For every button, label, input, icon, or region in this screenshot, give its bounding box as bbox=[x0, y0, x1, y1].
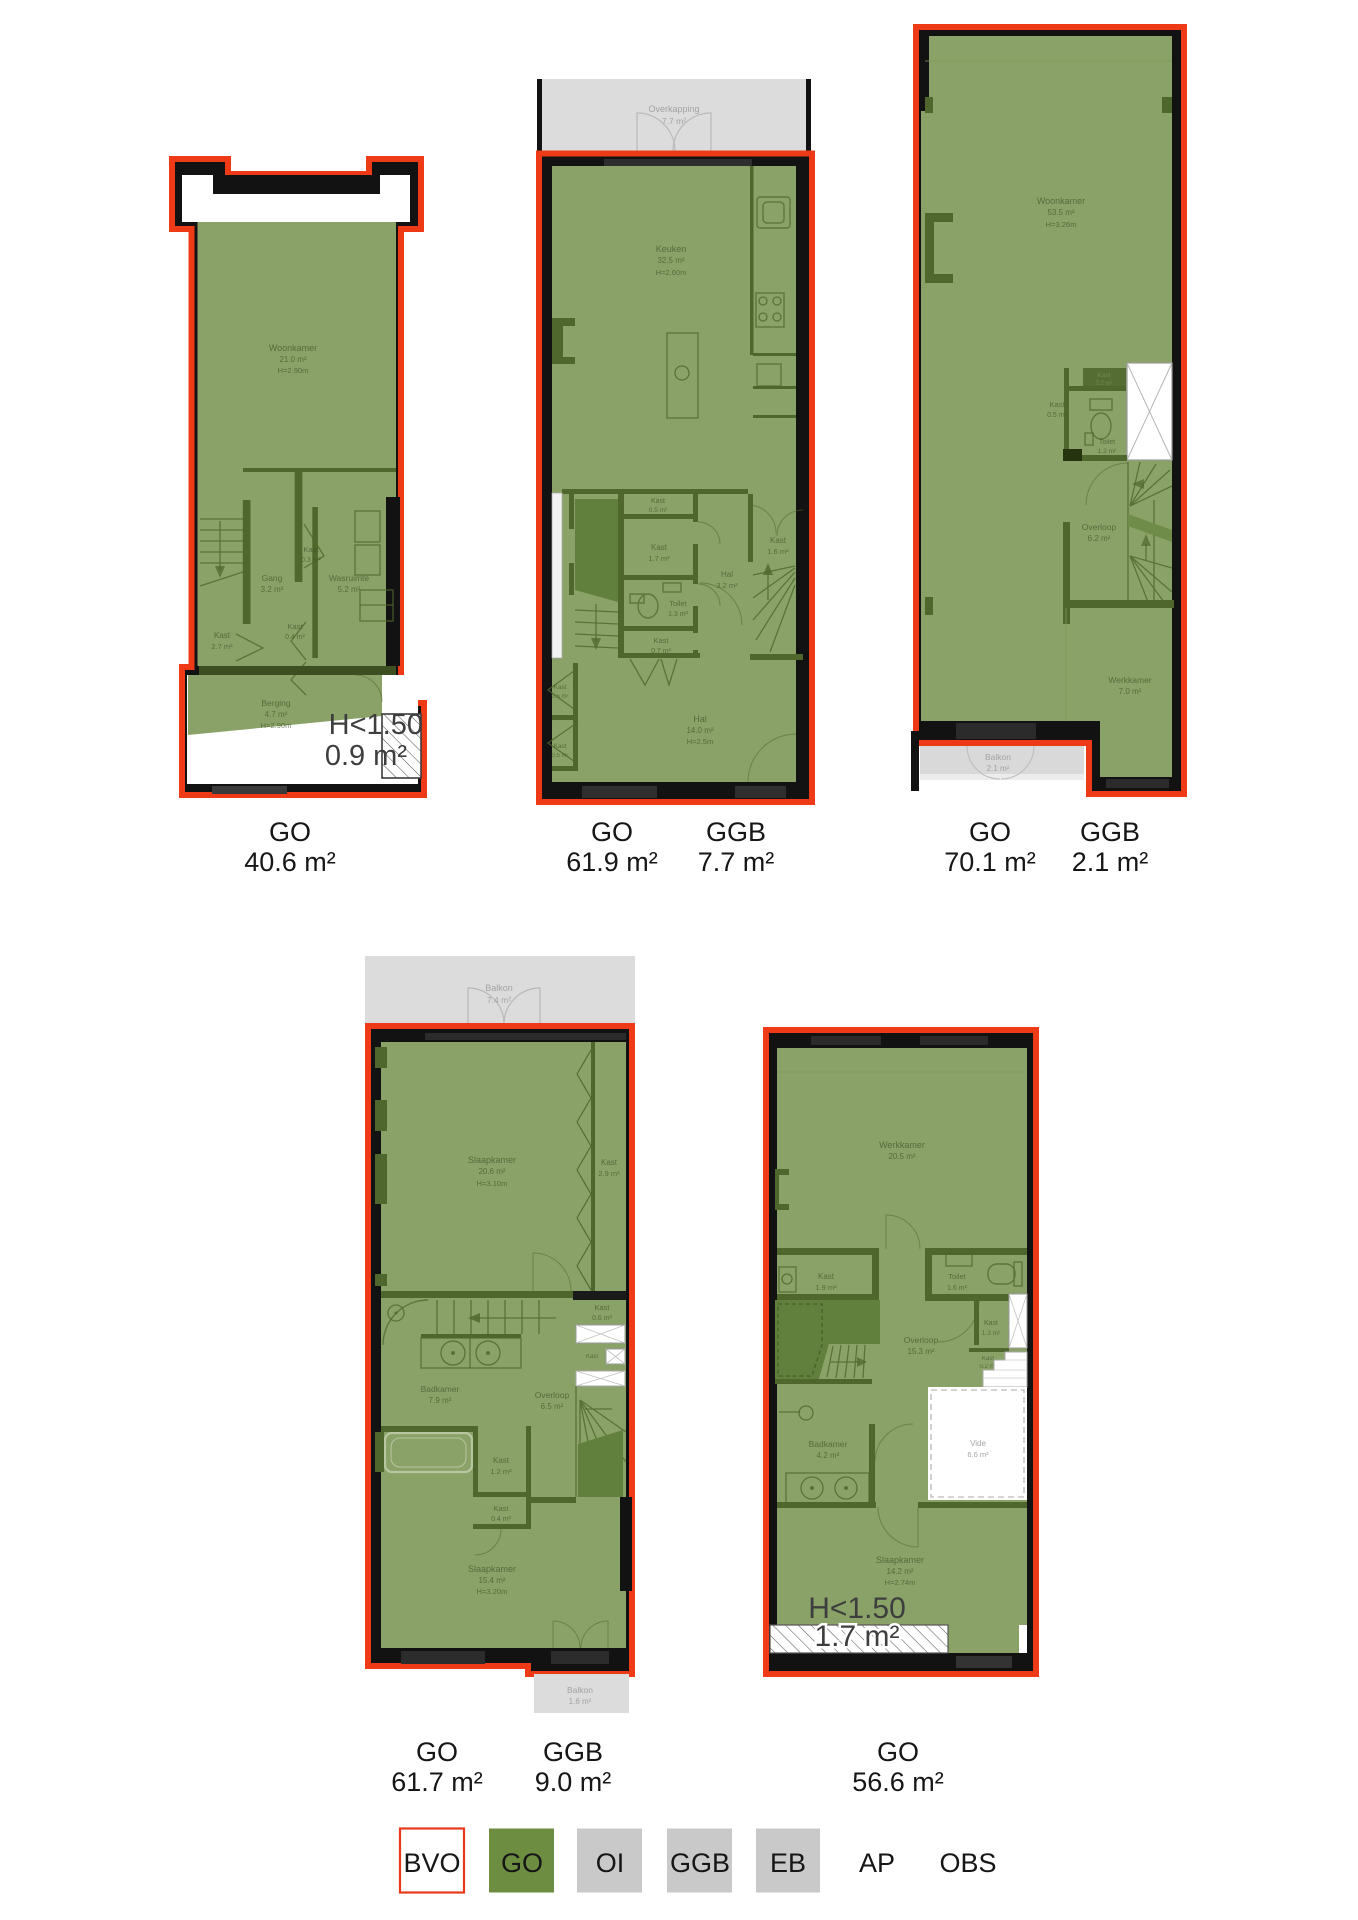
svg-text:Keuken: Keuken bbox=[656, 244, 687, 254]
svg-text:Kast: Kast bbox=[553, 684, 566, 691]
svg-text:Kast: Kast bbox=[553, 743, 566, 750]
svg-text:0.6 m²: 0.6 m² bbox=[592, 1315, 613, 1322]
svg-text:Overloop: Overloop bbox=[535, 1390, 570, 1400]
svg-text:H=3.10m: H=3.10m bbox=[477, 1179, 508, 1188]
svg-text:Overkapping: Overkapping bbox=[648, 104, 699, 114]
svg-text:Kast: Kast bbox=[287, 622, 303, 631]
svg-text:2.9 m²: 2.9 m² bbox=[598, 1169, 620, 1178]
svg-text:OBS: OBS bbox=[939, 1848, 996, 1878]
svg-text:Kast: Kast bbox=[303, 545, 319, 554]
svg-text:2.7 m²: 2.7 m² bbox=[211, 642, 233, 651]
svg-text:H=2.74m: H=2.74m bbox=[885, 1578, 916, 1587]
svg-text:Badkamer: Badkamer bbox=[421, 1384, 460, 1394]
svg-text:15.3 m²: 15.3 m² bbox=[907, 1347, 934, 1356]
svg-text:1.7 m²: 1.7 m² bbox=[814, 1620, 899, 1653]
svg-text:61.9 m²: 61.9 m² bbox=[566, 847, 658, 877]
svg-text:H=2.90m: H=2.90m bbox=[261, 721, 292, 730]
svg-text:0.5 m²: 0.5 m² bbox=[1047, 412, 1068, 419]
svg-text:Kast: Kast bbox=[214, 631, 231, 640]
svg-text:Berging: Berging bbox=[261, 698, 291, 708]
svg-text:GO: GO bbox=[969, 817, 1011, 847]
svg-text:Werkkamer: Werkkamer bbox=[1108, 675, 1151, 685]
svg-text:Slaapkamer: Slaapkamer bbox=[876, 1555, 924, 1565]
svg-text:4.7 m²: 4.7 m² bbox=[265, 710, 288, 719]
svg-text:14.2 m²: 14.2 m² bbox=[886, 1567, 913, 1576]
svg-text:Hal: Hal bbox=[721, 570, 733, 579]
svg-text:Overloop: Overloop bbox=[1082, 522, 1117, 532]
svg-text:Kast: Kast bbox=[653, 636, 669, 645]
svg-text:0.2 m²: 0.2 m² bbox=[1095, 381, 1112, 387]
svg-text:15.4 m²: 15.4 m² bbox=[478, 1576, 505, 1585]
svg-text:Toilet: Toilet bbox=[948, 1272, 966, 1281]
svg-text:0.5 m²: 0.5 m² bbox=[551, 753, 568, 759]
svg-text:20.5 m²: 20.5 m² bbox=[888, 1152, 915, 1161]
svg-text:21.0 m²: 21.0 m² bbox=[279, 355, 306, 364]
svg-text:2.1 m²: 2.1 m² bbox=[987, 764, 1010, 773]
svg-text:1.6 m²: 1.6 m² bbox=[569, 1697, 592, 1706]
svg-text:GGB: GGB bbox=[670, 1848, 730, 1878]
svg-text:3.2 m²: 3.2 m² bbox=[716, 581, 738, 590]
svg-text:3.2 m²: 3.2 m² bbox=[261, 585, 284, 594]
svg-text:Hal: Hal bbox=[693, 714, 707, 724]
svg-text:H=3.26m: H=3.26m bbox=[1046, 220, 1077, 229]
svg-text:6.2 m²: 6.2 m² bbox=[1088, 534, 1111, 543]
svg-text:40.6 m²: 40.6 m² bbox=[244, 847, 336, 877]
svg-text:Kast: Kast bbox=[594, 1303, 610, 1312]
svg-text:1.2 m²: 1.2 m² bbox=[490, 1467, 512, 1476]
svg-text:Balkon: Balkon bbox=[485, 983, 513, 993]
svg-text:1.6 m²: 1.6 m² bbox=[947, 1285, 968, 1292]
svg-text:70.1 m²: 70.1 m² bbox=[944, 847, 1036, 877]
svg-text:Kast: Kast bbox=[982, 1356, 994, 1362]
svg-text:9.0 m²: 9.0 m² bbox=[535, 1767, 612, 1797]
svg-text:0.7 m²: 0.7 m² bbox=[651, 648, 672, 655]
svg-text:1.3 m²: 1.3 m² bbox=[982, 1330, 1001, 1337]
svg-text:0.5 m²: 0.5 m² bbox=[551, 694, 568, 700]
svg-text:Werkkamer: Werkkamer bbox=[879, 1140, 925, 1150]
svg-text:1.7 m²: 1.7 m² bbox=[648, 554, 670, 563]
svg-text:Overloop: Overloop bbox=[904, 1335, 939, 1345]
svg-text:Toilet: Toilet bbox=[669, 599, 687, 608]
svg-text:1.3 m²: 1.3 m² bbox=[668, 611, 689, 618]
svg-text:61.7 m²: 61.7 m² bbox=[391, 1767, 483, 1797]
svg-text:1.6 m²: 1.6 m² bbox=[767, 547, 789, 556]
svg-text:56.6 m²: 56.6 m² bbox=[852, 1767, 944, 1797]
svg-text:H=2.90m: H=2.90m bbox=[278, 366, 309, 375]
svg-text:Kast: Kast bbox=[651, 498, 665, 505]
svg-text:H=2.5m: H=2.5m bbox=[687, 737, 713, 746]
svg-text:1.2 m²: 1.2 m² bbox=[1098, 448, 1117, 455]
svg-text:H<1.50: H<1.50 bbox=[329, 709, 423, 741]
svg-text:Gang: Gang bbox=[262, 573, 283, 583]
svg-text:Slaapkamer: Slaapkamer bbox=[468, 1564, 516, 1574]
svg-text:Kast: Kast bbox=[818, 1272, 835, 1281]
svg-text:5.2 m²: 5.2 m² bbox=[338, 585, 361, 594]
svg-text:GO: GO bbox=[416, 1737, 458, 1767]
svg-text:0.4 m²: 0.4 m² bbox=[285, 634, 306, 641]
svg-text:OI: OI bbox=[596, 1848, 625, 1878]
svg-text:20.6 m²: 20.6 m² bbox=[478, 1167, 505, 1176]
svg-text:Wasruimte: Wasruimte bbox=[329, 573, 370, 583]
svg-text:7.0 m²: 7.0 m² bbox=[1119, 687, 1142, 696]
svg-text:Kast: Kast bbox=[1049, 400, 1065, 409]
svg-text:BVO: BVO bbox=[403, 1848, 460, 1878]
svg-text:0.9 m²: 0.9 m² bbox=[325, 740, 408, 772]
svg-text:Slaapkamer: Slaapkamer bbox=[468, 1155, 516, 1165]
svg-text:H=3.20m: H=3.20m bbox=[477, 1587, 508, 1596]
svg-text:AP: AP bbox=[859, 1848, 895, 1878]
svg-text:Woonkamer: Woonkamer bbox=[269, 343, 317, 353]
svg-text:Kast: Kast bbox=[651, 543, 668, 552]
svg-text:6.6 m²: 6.6 m² bbox=[967, 1450, 989, 1459]
svg-text:EB: EB bbox=[770, 1848, 806, 1878]
svg-text:7.4 m²: 7.4 m² bbox=[487, 995, 511, 1005]
svg-text:Vide: Vide bbox=[970, 1439, 986, 1448]
svg-text:14.0 m²: 14.0 m² bbox=[686, 726, 713, 735]
svg-text:0.4 m²: 0.4 m² bbox=[491, 1516, 512, 1523]
svg-text:Toilet: Toilet bbox=[1099, 439, 1115, 446]
svg-text:4.2 m²: 4.2 m² bbox=[817, 1451, 840, 1460]
svg-text:53.5 m²: 53.5 m² bbox=[1047, 208, 1074, 217]
svg-text:Kast: Kast bbox=[1097, 372, 1110, 379]
svg-text:Kast: Kast bbox=[601, 1158, 618, 1167]
svg-text:H=2.60m: H=2.60m bbox=[656, 268, 687, 277]
svg-text:7.9 m²: 7.9 m² bbox=[429, 1396, 452, 1405]
svg-text:6.5 m²: 6.5 m² bbox=[541, 1402, 564, 1411]
svg-text:Kast: Kast bbox=[493, 1504, 509, 1513]
svg-text:7.7 m²: 7.7 m² bbox=[662, 116, 686, 126]
svg-text:GO: GO bbox=[501, 1848, 543, 1878]
svg-text:Kast: Kast bbox=[586, 1354, 598, 1360]
svg-text:Kast: Kast bbox=[984, 1320, 998, 1327]
svg-text:2.1 m²: 2.1 m² bbox=[1072, 847, 1149, 877]
svg-text:Balkon: Balkon bbox=[567, 1685, 593, 1695]
svg-text:0.5 m²: 0.5 m² bbox=[649, 507, 668, 514]
svg-text:Kast: Kast bbox=[770, 536, 787, 545]
svg-text:GO: GO bbox=[877, 1737, 919, 1767]
svg-text:1.9 m²: 1.9 m² bbox=[815, 1283, 837, 1292]
svg-text:GO: GO bbox=[591, 817, 633, 847]
svg-text:GGB: GGB bbox=[1080, 817, 1140, 847]
svg-text:GGB: GGB bbox=[543, 1737, 603, 1767]
svg-text:Kast: Kast bbox=[493, 1456, 510, 1465]
svg-text:Badkamer: Badkamer bbox=[809, 1439, 848, 1449]
svg-text:GGB: GGB bbox=[706, 817, 766, 847]
svg-text:32.5 m²: 32.5 m² bbox=[657, 256, 684, 265]
svg-text:0.3 m²: 0.3 m² bbox=[301, 557, 322, 564]
svg-text:Balkon: Balkon bbox=[985, 752, 1011, 762]
svg-text:Woonkamer: Woonkamer bbox=[1037, 196, 1085, 206]
svg-text:7.7 m²: 7.7 m² bbox=[698, 847, 775, 877]
svg-text:GO: GO bbox=[269, 817, 311, 847]
